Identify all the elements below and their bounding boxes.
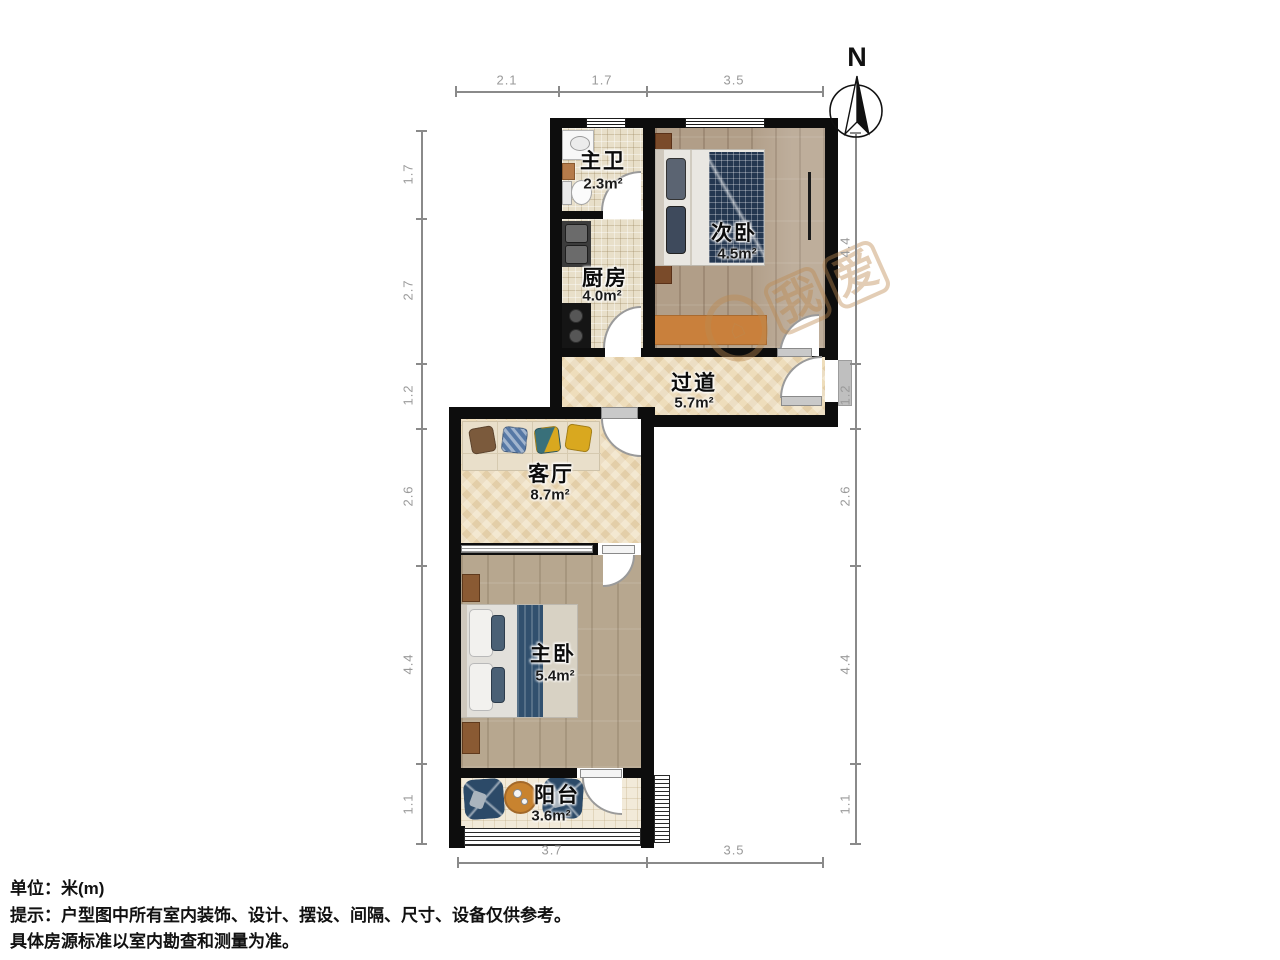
floor-plan-page: 主卫 2.3m² 厨房 4.0m² 次卧 4.5m² 过道 5.7m² 客厅 8… [0, 0, 1280, 960]
opening-entry-door [825, 360, 838, 402]
dim-tick [822, 857, 824, 868]
dim-label: 3.5 [723, 843, 744, 858]
north-arrow-icon [818, 68, 898, 154]
sofa-pillow-brown [468, 425, 497, 455]
room-area-master-bath: 2.3m² [583, 176, 622, 193]
dim-label: 1.7 [591, 73, 612, 88]
kitchen-sink-basin [565, 224, 588, 243]
footer-disclaimer-line1: 提示：户型图中所有室内装饰、设计、摆设、间隔、尺寸、设备仅供参考。 [10, 901, 571, 926]
dim-tick [850, 843, 861, 845]
dim-label: 4.4 [838, 236, 853, 257]
room-label-balcony: 阳台 [534, 779, 580, 809]
dim-label: 2.6 [838, 485, 853, 506]
door-leaf-living [601, 407, 638, 419]
room-label-master-bath: 主卫 [580, 145, 626, 175]
dim-line-left [421, 130, 423, 845]
dim-tick [646, 857, 648, 868]
stove-burner [569, 329, 583, 343]
teacup [521, 798, 528, 805]
bed-pillow-blue [491, 615, 505, 651]
teacup [513, 789, 522, 798]
dim-tick [416, 363, 427, 365]
dim-tick [850, 565, 861, 567]
dim-tick [416, 218, 427, 220]
dim-tick [416, 428, 427, 430]
dim-label: 2.7 [401, 279, 416, 300]
sofa-seat-line [497, 422, 498, 470]
dim-label: 1.1 [838, 793, 853, 814]
dim-tick [558, 86, 560, 97]
bed-pillow-blue [491, 667, 505, 703]
window-balcony-east [654, 775, 670, 843]
sofa-pillow-blue [501, 426, 529, 454]
door-leaf-balcony [580, 769, 622, 778]
wall-lower-east [641, 419, 654, 848]
dim-tick [416, 565, 427, 567]
dim-label: 4.4 [401, 653, 416, 674]
dresser [462, 574, 480, 602]
room-label-second-bedroom: 次卧 [711, 217, 757, 247]
room-area-balcony: 3.6m² [531, 808, 570, 825]
room-label-hallway: 过道 [671, 367, 717, 397]
dim-tick [455, 86, 457, 97]
wall-balcony-stub [449, 826, 465, 848]
window-second-bedroom [685, 118, 765, 128]
wall-upper-south [643, 415, 838, 427]
footer-unit-note: 单位：米(m) [10, 874, 104, 899]
door-leaf-entry [781, 396, 822, 406]
dim-tick [416, 130, 427, 132]
nightstand [652, 264, 672, 284]
dim-label: 1.2 [401, 384, 416, 405]
wall-upper-west [550, 118, 562, 419]
stove-burner [569, 309, 583, 323]
dim-line-right [855, 132, 857, 845]
wall-kitchen-bedroom [643, 128, 655, 357]
bath-cabinet [562, 163, 575, 180]
room-area-master-bedroom: 5.4m² [535, 668, 574, 685]
bed-headboard [656, 150, 664, 265]
window-bath [586, 118, 626, 128]
room-label-master-bedroom: 主卧 [530, 638, 576, 668]
dim-tick [457, 857, 459, 868]
dim-line-bottom [457, 862, 823, 864]
bed-fold-line [690, 150, 692, 265]
room-area-kitchen: 4.0m² [582, 288, 621, 305]
dim-label: 2.6 [401, 485, 416, 506]
door-leaf-master [602, 545, 635, 554]
dim-label: 2.1 [496, 73, 517, 88]
dim-tick [416, 763, 427, 765]
bed-pillow [666, 158, 686, 200]
wall-lower-west [449, 407, 461, 848]
bed-headboard [461, 605, 467, 717]
room-area-living-room: 8.7m² [530, 487, 569, 504]
dim-label: 4.4 [838, 653, 853, 674]
dim-tick [850, 763, 861, 765]
window-living-master [461, 545, 593, 553]
bed-pillow [469, 663, 493, 711]
watermark-char: 我 [761, 264, 835, 338]
opening-kitchen-door [605, 348, 641, 357]
footer-disclaimer-line2: 具体房源标准以室内勘查和测量为准。 [10, 927, 299, 952]
dresser [462, 722, 480, 754]
room-label-living-room: 客厅 [528, 458, 574, 488]
sofa-pillow-teal [534, 426, 562, 455]
dim-tick [850, 363, 861, 365]
dim-label: 1.7 [401, 163, 416, 184]
dim-label: 1.2 [838, 384, 853, 405]
dim-label: 1.1 [401, 793, 416, 814]
dim-tick [646, 86, 648, 97]
dim-tick [850, 428, 861, 430]
sofa-pillow-yellow [564, 423, 593, 453]
bed-pillow [469, 609, 493, 657]
opening-bath-door [603, 211, 643, 219]
dim-line-top [455, 91, 823, 93]
dim-tick [416, 843, 427, 845]
dim-label: 3.5 [723, 73, 744, 88]
dim-label: 3.7 [541, 843, 562, 858]
bed-pillow [666, 206, 686, 254]
room-area-hallway: 5.7m² [674, 395, 713, 412]
